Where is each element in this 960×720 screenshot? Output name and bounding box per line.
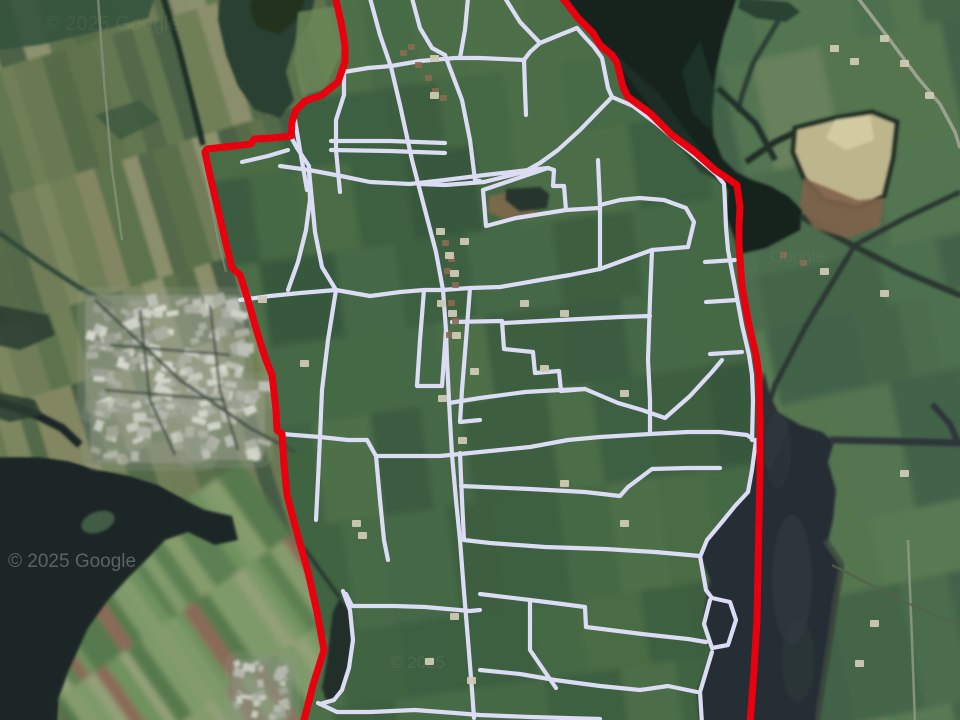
- svg-text:© 2025 Google: © 2025 Google: [8, 551, 136, 572]
- svg-text:Google: Google: [770, 247, 825, 266]
- svg-text:© 2025 Google: © 2025 Google: [45, 13, 180, 35]
- svg-text:© 2025: © 2025: [390, 653, 445, 672]
